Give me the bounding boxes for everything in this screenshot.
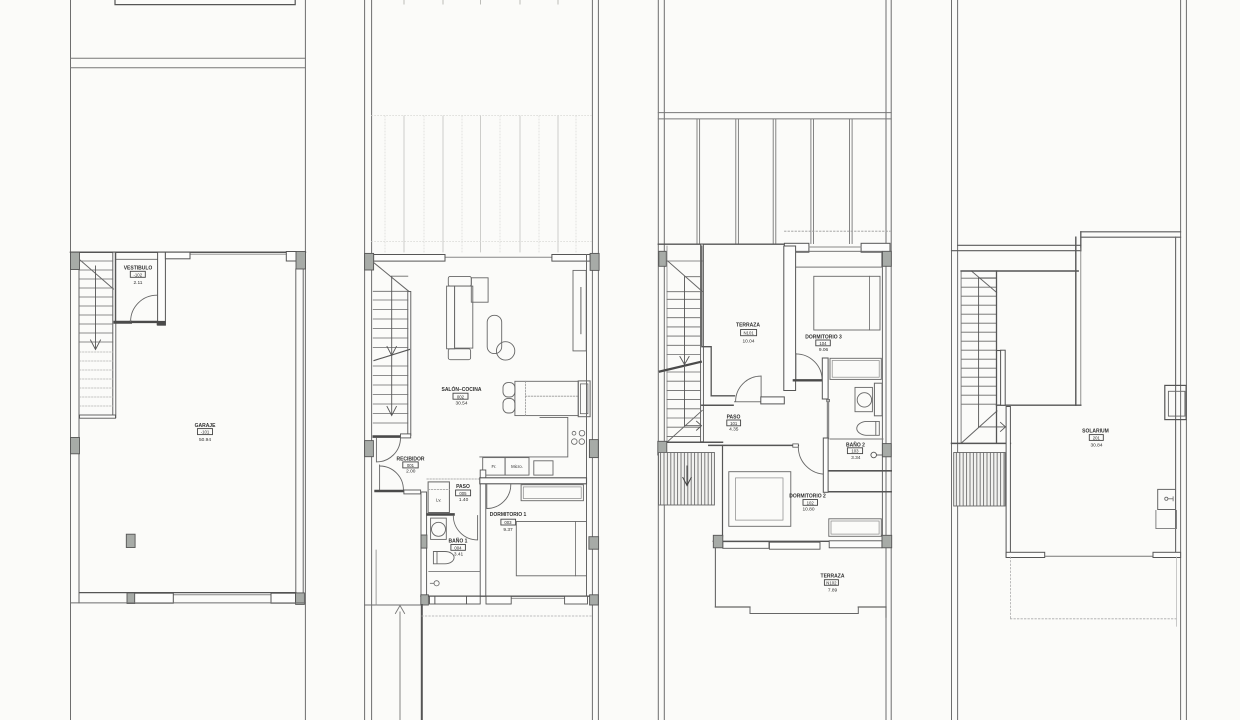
svg-text:104: 104 — [819, 341, 827, 346]
svg-text:Micro.: Micro. — [511, 464, 523, 469]
svg-text:SOLARIUM: SOLARIUM — [1082, 428, 1109, 434]
svg-text:004: 004 — [454, 545, 462, 550]
svg-text:005: 005 — [459, 491, 467, 496]
svg-text:10.04: 10.04 — [742, 338, 754, 344]
svg-text:BAÑO 1: BAÑO 1 — [449, 537, 468, 544]
svg-text:TERRAZA: TERRAZA — [736, 323, 760, 329]
svg-text:PASO: PASO — [727, 414, 741, 420]
svg-text:4.35: 4.35 — [729, 427, 739, 433]
svg-text:201: 201 — [1093, 436, 1101, 441]
svg-text:9.37: 9.37 — [503, 527, 513, 533]
svg-text:101: 101 — [730, 421, 738, 426]
svg-text:1.40: 1.40 — [459, 497, 469, 503]
svg-text:30.84: 30.84 — [1090, 442, 1102, 448]
svg-text:7.89: 7.89 — [828, 588, 838, 594]
svg-text:002: 002 — [457, 394, 465, 399]
svg-text:102: 102 — [807, 500, 815, 505]
svg-text:103: 103 — [851, 449, 859, 454]
svg-text:50.94: 50.94 — [199, 437, 211, 443]
svg-text:N102: N102 — [826, 580, 837, 585]
svg-text:9.06: 9.06 — [819, 347, 829, 353]
svg-text:SALÓN–COCINA: SALÓN–COCINA — [441, 385, 481, 393]
svg-text:DORMITORIO 1: DORMITORIO 1 — [490, 512, 527, 518]
svg-text:-102: -102 — [133, 272, 142, 277]
svg-text:PASO: PASO — [456, 484, 470, 490]
svg-text:3.34: 3.34 — [851, 455, 861, 461]
svg-text:-101: -101 — [201, 430, 210, 435]
svg-text:2.11: 2.11 — [134, 280, 143, 286]
svg-text:3.41: 3.41 — [454, 551, 464, 557]
svg-text:001: 001 — [407, 463, 415, 468]
svg-text:30.54: 30.54 — [455, 401, 467, 407]
svg-text:DORMITORIO 2: DORMITORIO 2 — [789, 494, 826, 500]
svg-text:Fr.: Fr. — [491, 464, 496, 469]
svg-text:2.00: 2.00 — [406, 469, 416, 475]
svg-text:GARAJE: GARAJE — [195, 423, 217, 429]
svg-text:Lv.: Lv. — [436, 498, 441, 503]
svg-text:N101: N101 — [743, 331, 754, 336]
svg-text:BAÑO 2: BAÑO 2 — [846, 441, 865, 448]
svg-text:10.80: 10.80 — [802, 506, 814, 512]
svg-text:VESTIBULO: VESTIBULO — [124, 265, 153, 271]
svg-text:003: 003 — [504, 520, 512, 525]
svg-text:TERRAZA: TERRAZA — [821, 574, 845, 580]
